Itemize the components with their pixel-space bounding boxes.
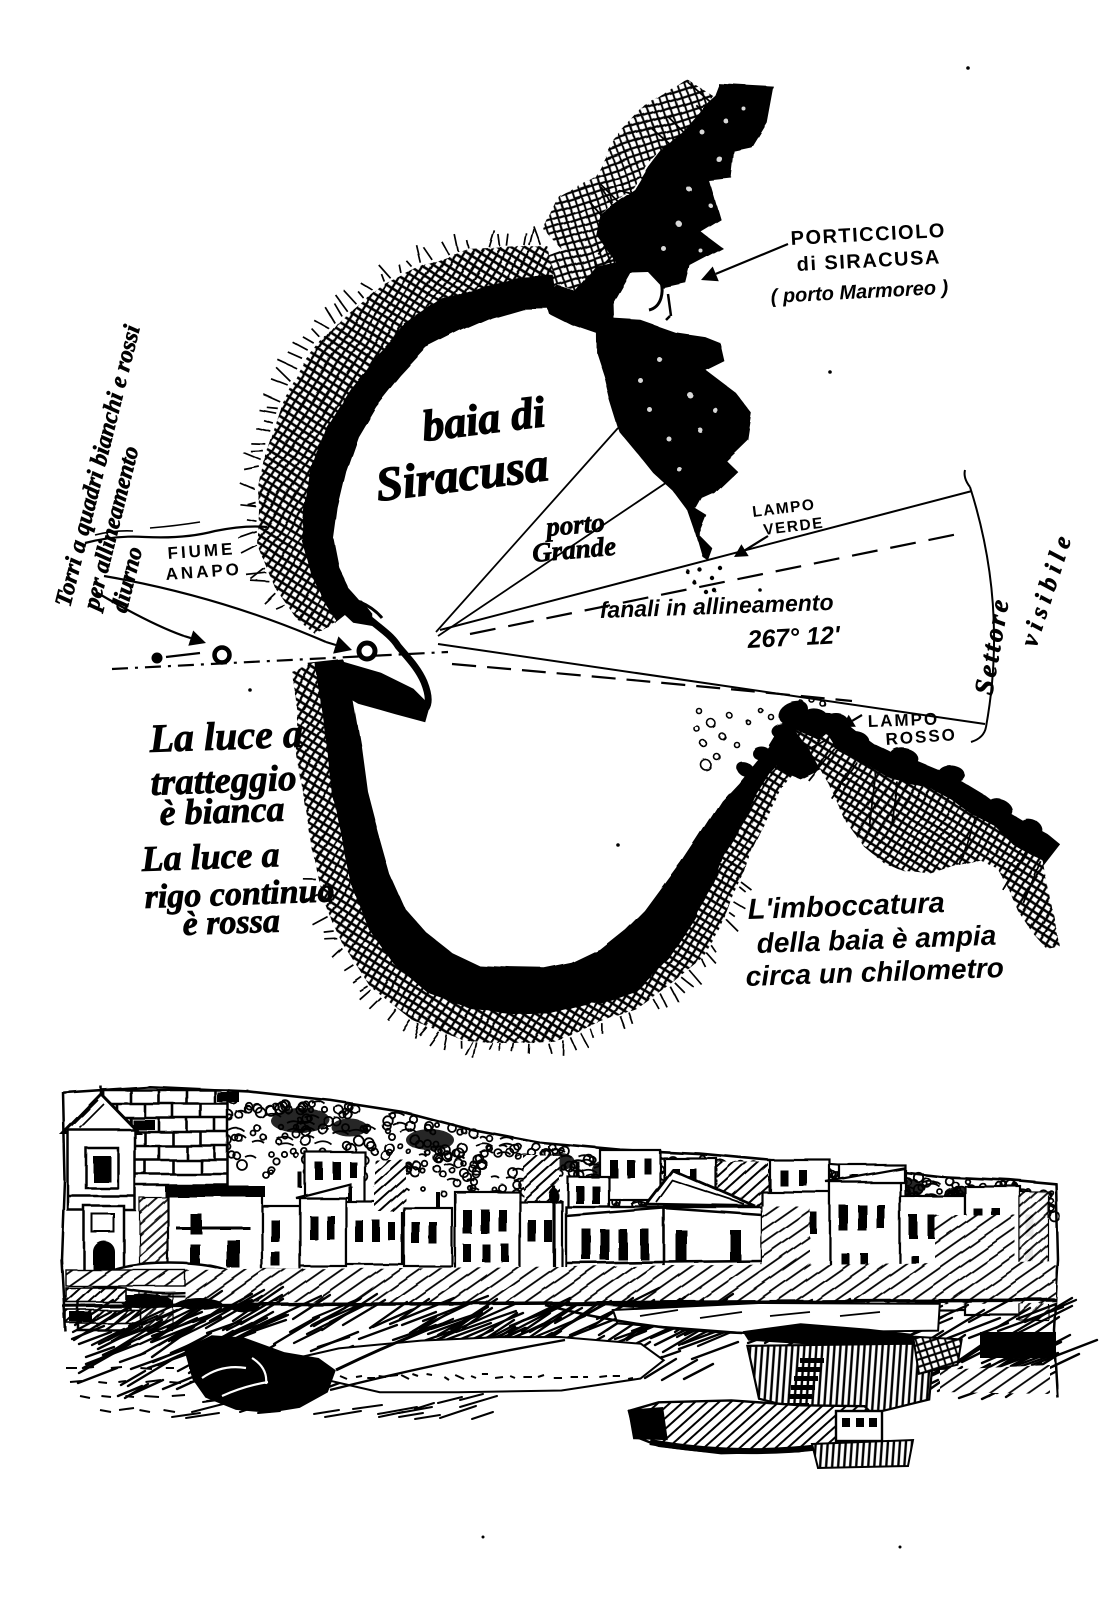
svg-text:La luce a: La luce a (148, 711, 304, 761)
svg-text:La luce a: La luce a (140, 834, 280, 879)
svg-text:267° 12': 267° 12' (746, 621, 842, 654)
svg-text:è bianca: è bianca (159, 789, 285, 833)
svg-text:è rossa: è rossa (182, 903, 281, 943)
